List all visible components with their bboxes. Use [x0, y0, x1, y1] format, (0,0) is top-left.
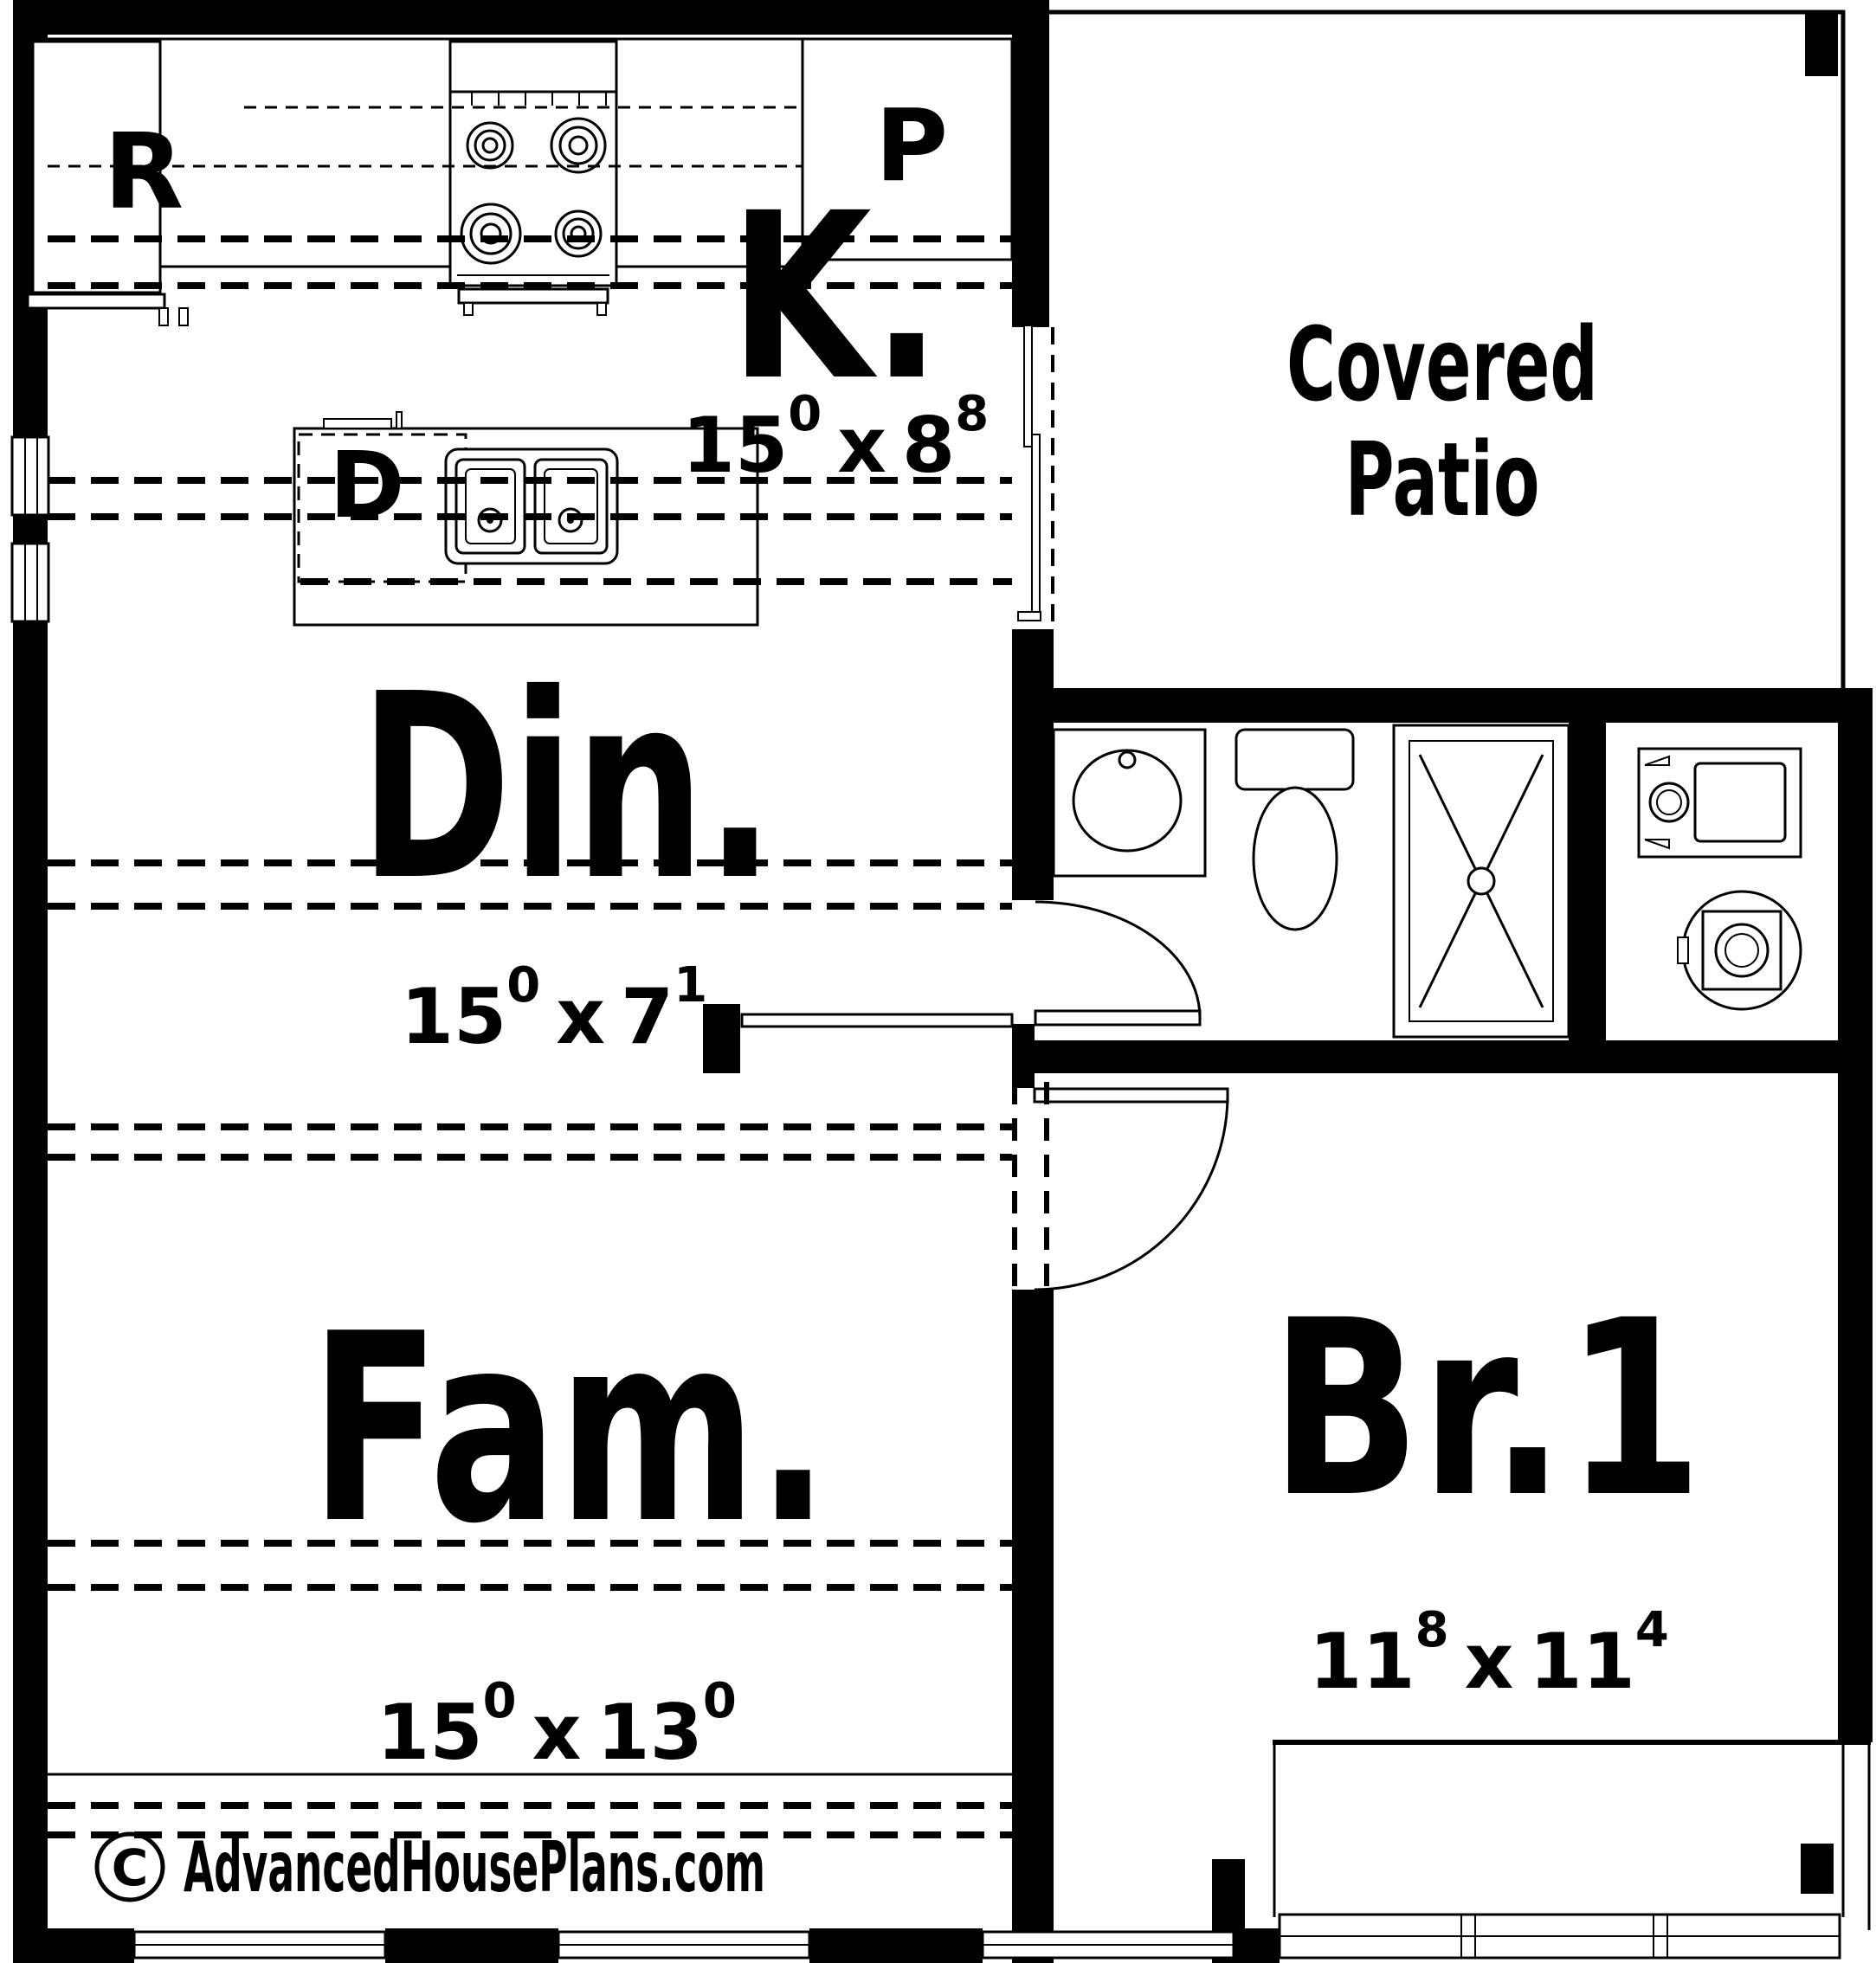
toilet-bowl — [1254, 788, 1337, 930]
wall-bottom-c — [809, 1928, 983, 1963]
dim-sep: x — [1465, 1617, 1514, 1706]
wall-bottom-a — [13, 1928, 134, 1963]
laundry-closet — [1639, 749, 1801, 1009]
window-frame — [12, 437, 48, 515]
refrigerator-base — [28, 294, 164, 308]
cased-opening-header — [742, 1014, 1012, 1027]
vanity-sink-icon — [1054, 730, 1205, 876]
wall-laundry-divider — [1569, 723, 1606, 1073]
wall-top — [13, 0, 1049, 35]
wall-bedroom-west — [1012, 1290, 1054, 1963]
dim-value: 11 — [1309, 1617, 1415, 1706]
refrigerator-label: R — [104, 113, 184, 233]
window-icon-bottom-2 — [558, 1932, 809, 1958]
wall-left-mullion — [13, 515, 48, 544]
sliding-door-cap — [1018, 612, 1041, 621]
dim-sup: 0 — [788, 386, 822, 442]
dim-value: 15 — [401, 972, 506, 1061]
bedroom-door-icon — [1015, 1082, 1228, 1290]
dim-sup: 1 — [674, 957, 707, 1014]
dim-value: 13 — [596, 1688, 702, 1777]
window-icon-left-1 — [12, 437, 48, 515]
family-dimensions: 150x130 — [377, 1673, 737, 1777]
dishwasher-label: D — [329, 433, 404, 538]
room-label-bedroom1: Br.1 — [1270, 1269, 1703, 1551]
pantry-label: P — [875, 88, 948, 204]
shower-drain — [1468, 868, 1494, 894]
window-icon-left-2 — [12, 544, 48, 621]
dim-value: 15 — [377, 1688, 482, 1777]
dim-value: 8 — [902, 401, 955, 490]
dining-dimensions: 150x71 — [401, 957, 707, 1061]
washer-icon — [1639, 749, 1801, 857]
room-label-patio-line1: Covered — [1286, 305, 1598, 424]
toilet-icon — [1236, 730, 1353, 930]
wall-bottom-b — [385, 1928, 558, 1963]
dryer-icon — [1678, 891, 1801, 1009]
dim-sup: 8 — [1415, 1602, 1449, 1658]
wall-kitchen-patio — [1012, 0, 1049, 327]
double-sink-icon — [446, 449, 617, 563]
dim-sup: 4 — [1635, 1602, 1669, 1658]
island-tab — [324, 419, 391, 428]
washer-lid — [1695, 763, 1785, 841]
dim-sup: 8 — [955, 386, 989, 442]
sliding-panel — [1024, 325, 1032, 447]
dim-sup: 0 — [703, 1673, 737, 1729]
wall-door-jamb-block — [1012, 1024, 1035, 1088]
watermark-text: AdvancedHousePlans.com — [184, 1827, 765, 1908]
watermark: C AdvancedHousePlans.com — [97, 1827, 765, 1908]
bathroom — [1035, 725, 1569, 1037]
sliding-panel — [1032, 434, 1040, 619]
bay-window-icon — [1273, 1742, 1871, 1958]
wall-right — [1838, 688, 1873, 1742]
floor-plan-drawing: K. 150x88 Covered Patio Din. 150x71 Fam.… — [0, 0, 1876, 1963]
bay-pier — [1801, 1844, 1834, 1894]
dim-sep: x — [532, 1688, 582, 1777]
room-label-kitchen: K. — [730, 164, 942, 431]
copyright-symbol: C — [112, 1838, 149, 1897]
door-leaf — [1035, 1011, 1200, 1025]
vanity-basin — [1073, 750, 1181, 851]
door-swing-arc — [1035, 1095, 1228, 1290]
window-icon-bottom-3 — [983, 1932, 1234, 1958]
patio-post — [1805, 12, 1838, 76]
dim-sup: 0 — [506, 957, 540, 1014]
dim-sep: x — [837, 401, 886, 490]
wall-bath-north — [1012, 688, 1838, 723]
wall-bath-west — [1012, 723, 1054, 900]
sink-basin-right — [535, 460, 607, 553]
dim-value: 11 — [1529, 1617, 1634, 1706]
wall-dining-hall-stub — [703, 1004, 740, 1073]
window-icon-bottom-1 — [134, 1932, 385, 1958]
window-frame — [12, 544, 48, 621]
refrigerator-foot — [179, 308, 188, 325]
stove-base — [459, 289, 608, 303]
stove-foot — [464, 303, 473, 315]
floor-plan-page: K. 150x88 Covered Patio Din. 150x71 Fam.… — [0, 0, 1876, 1963]
toilet-tank — [1236, 730, 1353, 789]
dim-sep: x — [556, 972, 605, 1061]
wall-left-lower — [13, 621, 48, 1963]
dim-sup: 0 — [483, 1673, 517, 1729]
door-leaf — [1035, 1089, 1228, 1102]
room-label-patio-line2: Patio — [1345, 420, 1540, 539]
bedroom1-dimensions: 118x114 — [1309, 1602, 1669, 1706]
bath-door-icon — [1035, 902, 1200, 1025]
door-swing-arc — [1035, 902, 1200, 1018]
room-label-dining: Din. — [359, 639, 775, 936]
refrigerator-foot — [159, 308, 168, 325]
island-pin — [396, 412, 402, 428]
wall-bedroom-north — [1035, 1040, 1838, 1073]
shower-icon — [1394, 725, 1569, 1037]
dim-value: 7 — [621, 972, 674, 1061]
sliding-door-icon — [1018, 325, 1041, 621]
stove-icon — [450, 42, 616, 315]
room-label-family: Fam. — [310, 1278, 829, 1580]
dryer-tab — [1678, 937, 1688, 963]
dim-value: 15 — [682, 401, 788, 490]
stove-foot — [597, 303, 606, 315]
